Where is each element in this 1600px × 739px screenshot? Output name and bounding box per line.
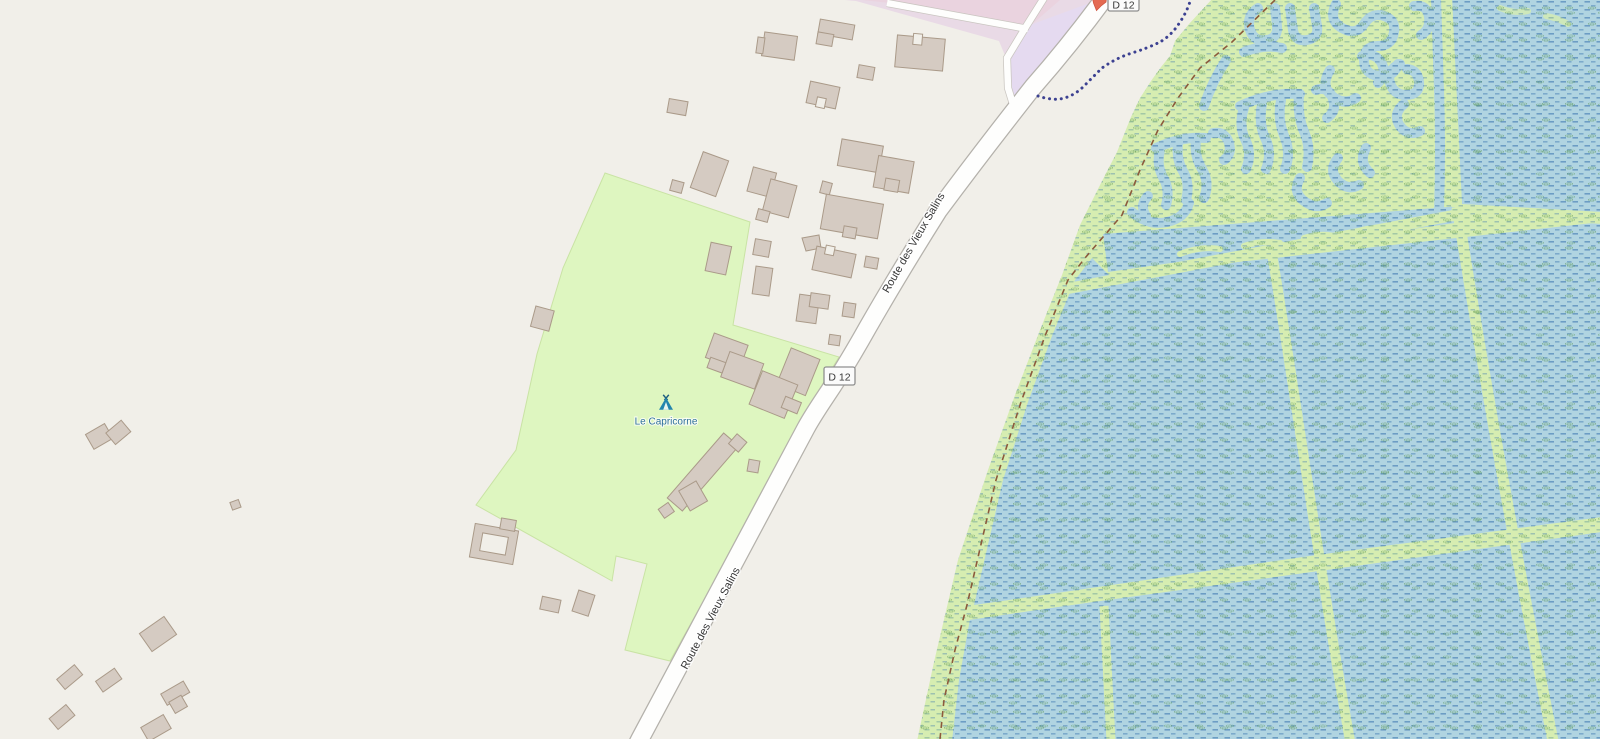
svg-text:Le Capricorne: Le Capricorne: [635, 417, 698, 428]
svg-text:D 12: D 12: [828, 372, 850, 384]
svg-text:D 12: D 12: [1112, 0, 1134, 12]
